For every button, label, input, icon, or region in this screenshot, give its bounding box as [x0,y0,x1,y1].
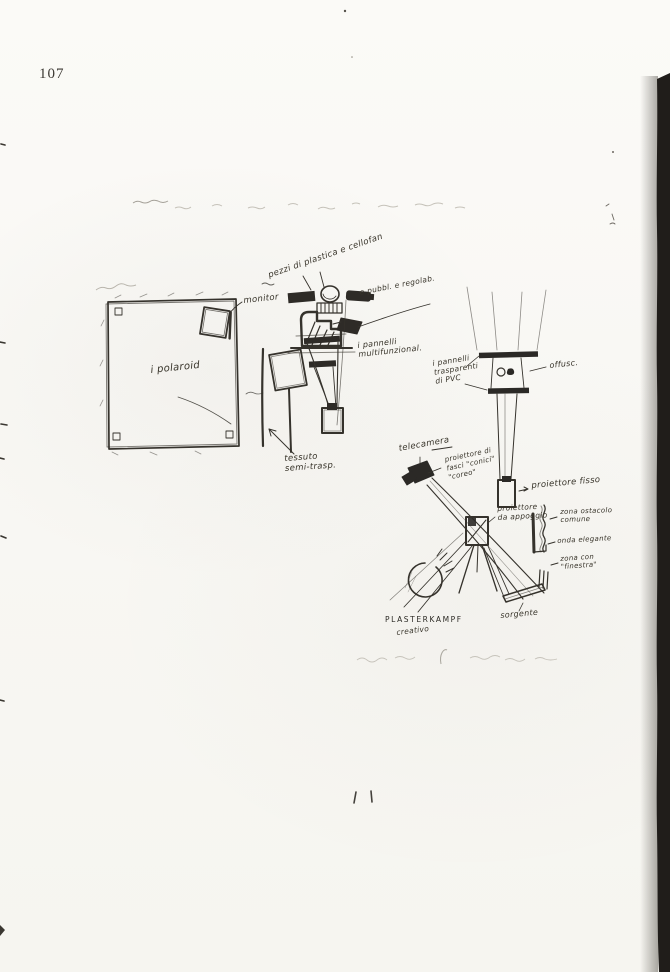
corner-marker [113,433,120,440]
label-zone-obstacle: zona ostacolo comune [560,506,613,524]
floor-projector-sketch [322,408,343,433]
stray-marks [0,10,615,936]
source-mirror-sketch [503,584,545,611]
balloon-sketch [405,549,454,597]
monitor-sketch [200,307,234,338]
corner-marker [226,431,233,438]
scanned-notebook-page: 107 [0,0,670,972]
label-support-projector: proiettore da appoggio [497,502,548,522]
label-zone-window: zona con "finestra" [560,552,597,571]
small-glyph-a [497,368,505,376]
wall-and-mirror-sketch [246,349,307,454]
small-glyph-b [507,368,514,375]
scan-edge-shadow [640,73,670,972]
label-fabric: tessuto semi-trasp. [284,450,337,474]
corner-marker [115,308,122,315]
lens-head-sketch [321,286,339,302]
faint-bottom-notes [357,650,557,664]
